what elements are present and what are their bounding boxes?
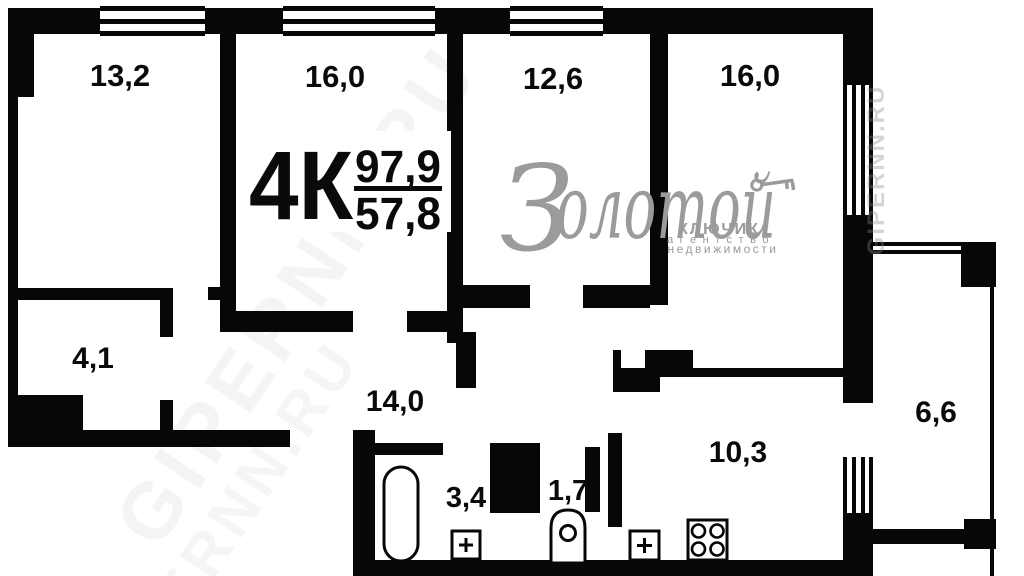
wall-right-upper [843,8,873,85]
room-label-closet: 4,1 [72,342,114,375]
room-label-living-room-1: 13,2 [90,58,150,93]
wall-room3-bottom-left [463,285,530,308]
wall-room1-room2-divider [220,33,236,325]
balcony-wall-bottom [873,529,966,544]
wall-bathroom-top [375,443,443,455]
wall-kitchen-top [613,368,843,377]
room-label-wc: 1,7 [548,475,588,507]
plan-living-area: 57,8 [355,188,441,239]
wall-room3-bottom-right [583,285,650,308]
wall-kitchen-left [608,433,622,527]
wall-bathroom-left [353,430,375,576]
wall-right-lower [843,513,873,576]
plan-total-area: 97,9 [355,141,441,192]
agency-watermark: З олотой КЛЮЧИК агентство недвижимости [500,140,795,278]
agency-line4: недвижимости [668,242,779,256]
room-label-hallway: 14,0 [366,385,424,418]
balcony-door [843,457,873,513]
plan-type-label: 4К [249,131,354,240]
bathtub-icon [384,467,418,561]
wall-kitchen-top-block [645,350,693,368]
site-watermark-vertical: GIPERNN.RU [863,85,890,256]
wall-kitchen-top-end [613,350,621,392]
wall-room2-bottom-left [220,311,353,332]
floor-plan-page: GIPERNN.RU GIPERNN.RU [0,0,1024,576]
window-room1 [100,6,205,36]
wall-closet-top [18,288,166,300]
wall-left [8,8,18,447]
wall-bottom [353,560,845,576]
wall-closet-corner-block [18,395,83,433]
room-label-kitchen: 10,3 [709,436,767,469]
wall-kitchen-top-thick [621,377,660,392]
window-room2 [283,6,435,36]
site-watermark-diagonal: GIPERNN.RU GIPERNN.RU [73,28,497,576]
bathroom-sink-icon [452,531,480,559]
wall-closet-stub-bottom [160,400,173,430]
room-label-living-room-2: 16,0 [305,59,365,94]
kitchen-sink-icon [630,531,659,560]
room-label-balcony: 6,6 [915,396,957,429]
wall-hallway-pier [456,332,476,388]
window-room3 [510,6,603,36]
toilet-icon [551,510,585,563]
wall-closet-stub-top [160,288,173,337]
wall-bath-wc-divider [490,443,540,513]
stove-icon [688,520,727,560]
room-label-living-room-3: 12,6 [523,61,583,96]
balcony-pillar-bottom-right [964,519,996,549]
room-label-bathroom: 3,4 [446,482,486,514]
floor-plan: GIPERNN.RU GIPERNN.RU [0,0,1024,576]
balcony-pillar-top-right [961,242,996,287]
room-label-living-room-4: 16,0 [720,58,780,93]
wall-room1-door-jamb [208,287,236,300]
plan-title: 4К 97,9 57,8 [245,131,451,240]
